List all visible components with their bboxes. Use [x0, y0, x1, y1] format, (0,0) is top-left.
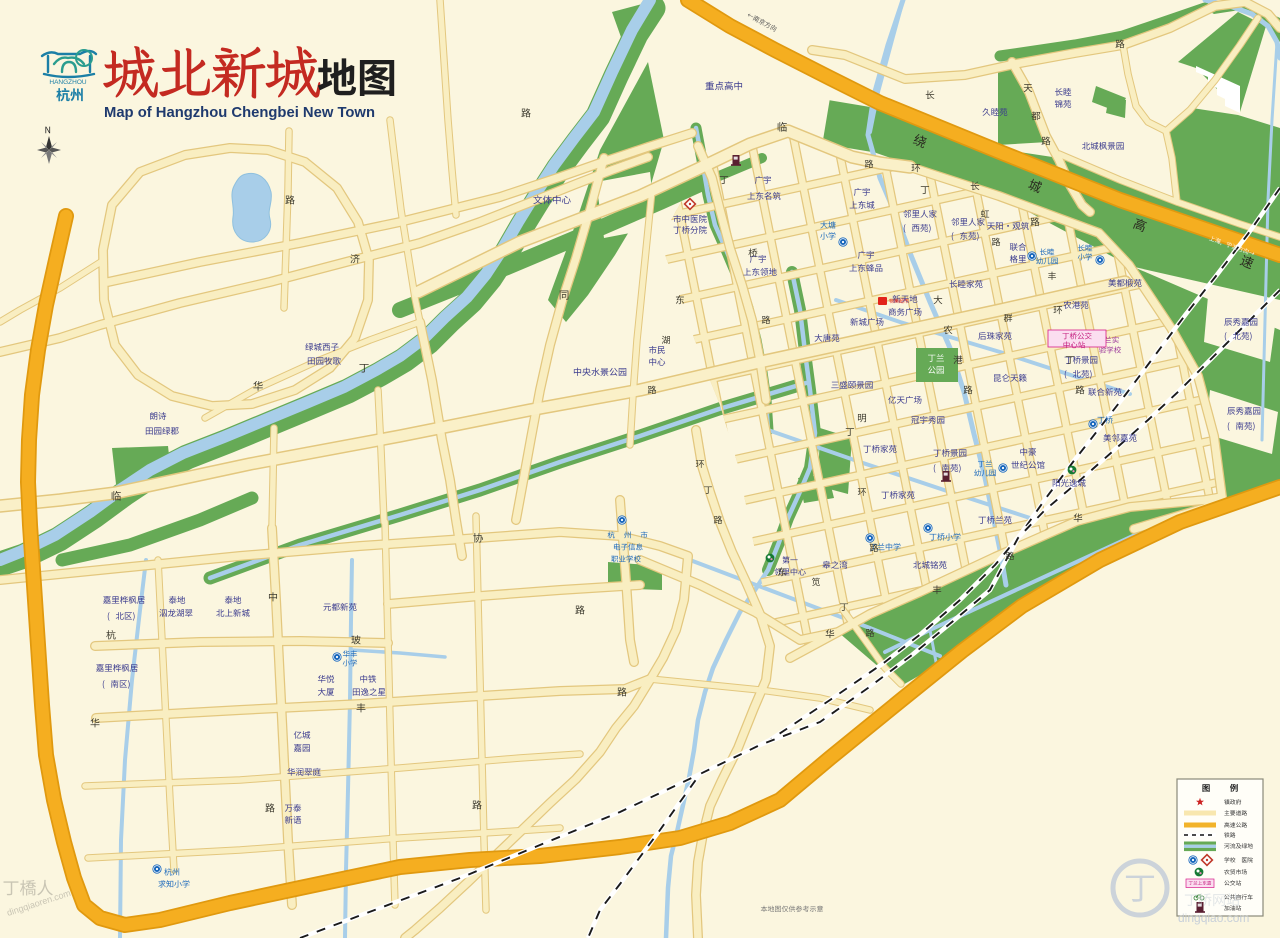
svg-text:HANGZHOU: HANGZHOU — [49, 79, 87, 86]
svg-text:Map of Hangzhou Chengbei New T: Map of Hangzhou Chengbei New Town — [104, 105, 375, 121]
svg-text:dingqiao.com: dingqiao.com — [1178, 911, 1249, 925]
